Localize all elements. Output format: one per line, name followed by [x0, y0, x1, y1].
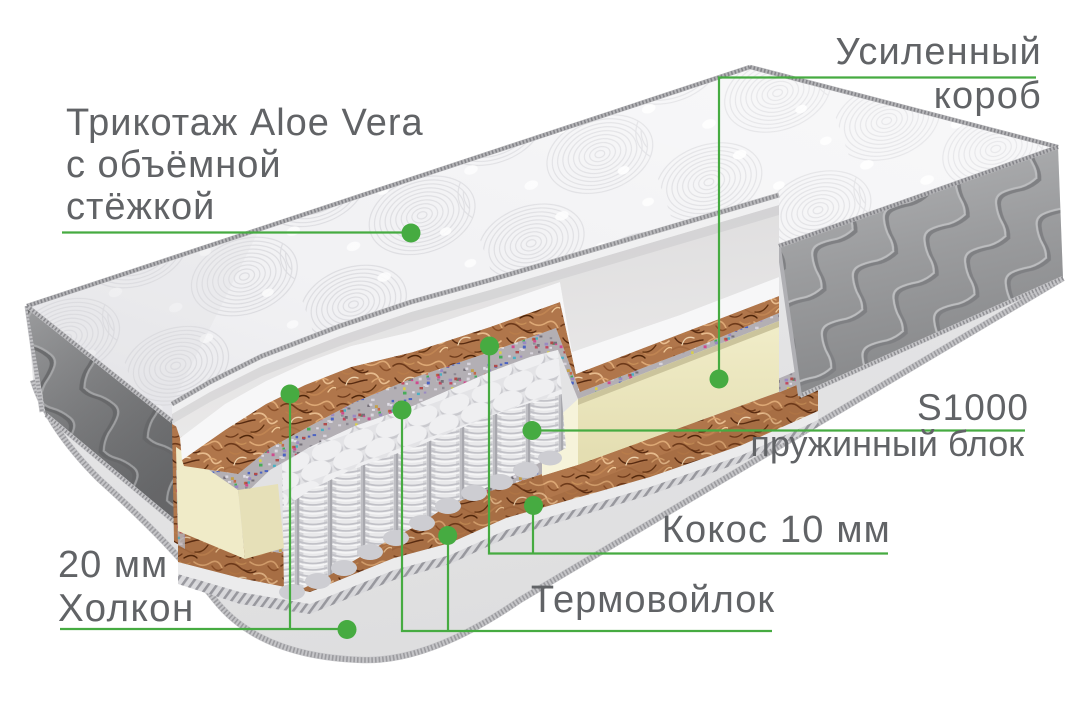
svg-text:стёжкой: стёжкой	[66, 186, 215, 228]
svg-text:пружинный блок: пружинный блок	[750, 423, 1024, 464]
svg-text:Термовойлок: Термовойлок	[531, 579, 775, 621]
svg-text:Усиленный: Усиленный	[836, 31, 1042, 73]
svg-text:Трикотаж Aloe Vera: Трикотаж Aloe Vera	[66, 102, 424, 144]
svg-text:Холкон: Холкон	[58, 587, 195, 630]
svg-text:короб: короб	[934, 75, 1042, 117]
svg-text:с объёмной: с объёмной	[66, 144, 282, 186]
svg-text:S1000: S1000	[917, 387, 1029, 428]
svg-text:Кокос 10 мм: Кокос 10 мм	[662, 509, 891, 551]
svg-text:20 мм: 20 мм	[58, 544, 168, 586]
